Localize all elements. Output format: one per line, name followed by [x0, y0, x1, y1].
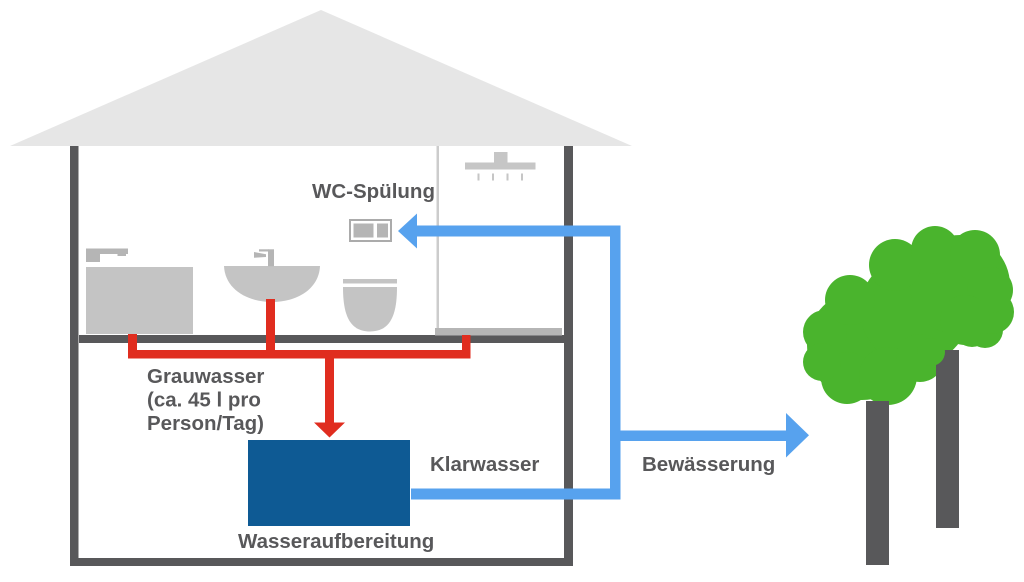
svg-text:Bewässerung: Bewässerung — [642, 453, 775, 476]
svg-text:WC-Spülung: WC-Spülung — [312, 180, 435, 203]
svg-text:Person/Tag): Person/Tag) — [147, 412, 264, 435]
svg-text:(ca. 45 l pro: (ca. 45 l pro — [147, 389, 261, 412]
svg-text:Wasseraufbereitung: Wasseraufbereitung — [238, 530, 434, 553]
svg-text:Grauwasser: Grauwasser — [147, 365, 264, 388]
svg-text:Klarwasser: Klarwasser — [430, 453, 539, 476]
